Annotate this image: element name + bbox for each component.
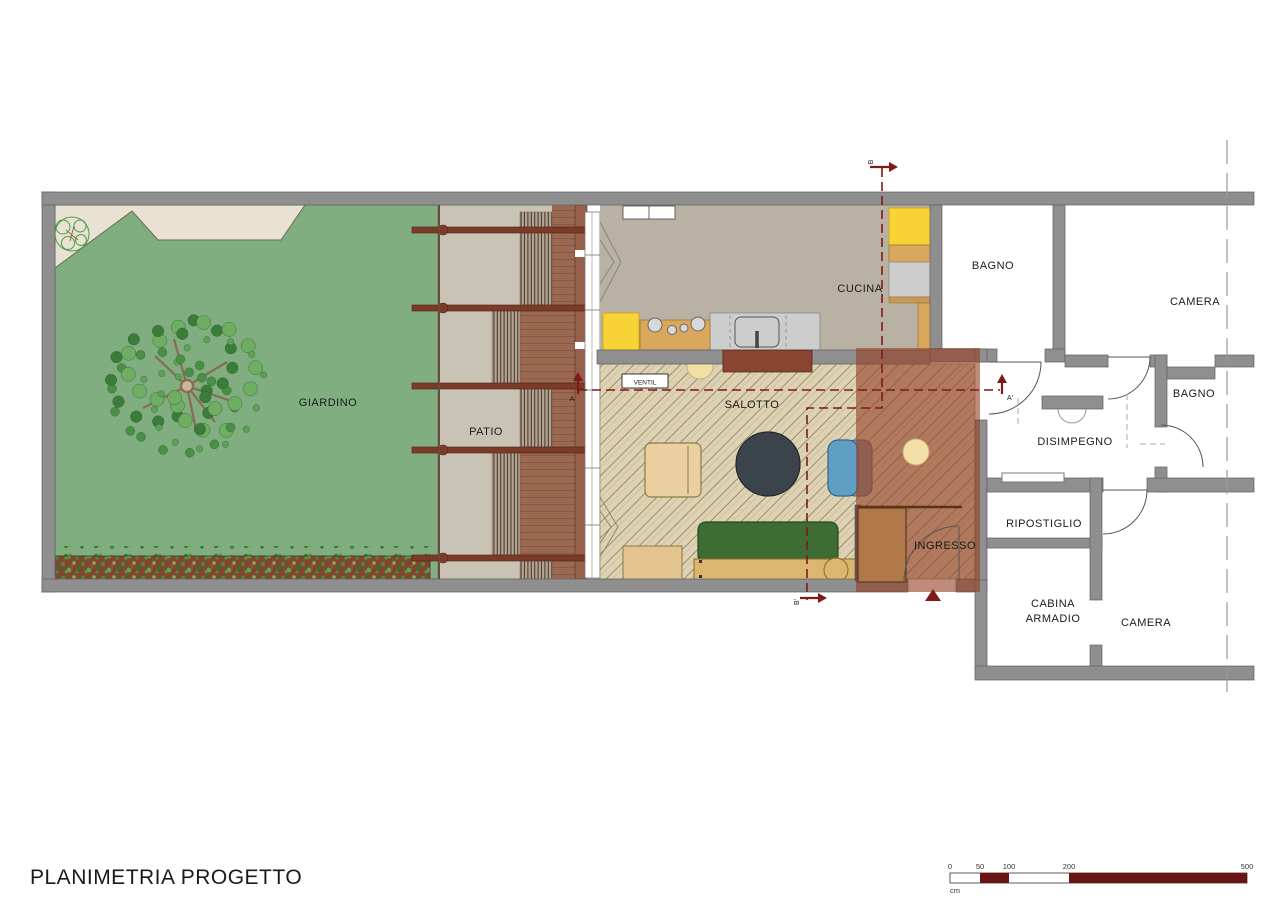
appliance-yellow — [603, 313, 639, 350]
sink-icon — [735, 317, 779, 348]
scale-segment-2 — [1069, 873, 1247, 883]
room-label-bagno1: BAGNO — [972, 260, 1014, 272]
page-title: PLANIMETRIA PROGETTO — [30, 866, 302, 889]
armchair — [645, 443, 701, 497]
room-label-giardino: GIARDINO — [299, 397, 357, 409]
side-table — [623, 546, 682, 581]
room-label-camera1: CAMERA — [1170, 296, 1220, 308]
section-label-a1: A' — [1007, 395, 1013, 402]
scale-bar: 0 50 100 200 500 cm — [948, 862, 1253, 895]
scale-tick-100: 100 — [1003, 862, 1016, 871]
floor-plan-page: B B' A A' GIARDINO PATIO CUCINA SALOTTO … — [0, 0, 1280, 905]
wall-kitchen-salotto — [597, 350, 723, 364]
fireplace-passthrough — [723, 350, 812, 372]
room-label-cabina-1: CABINA — [1031, 598, 1075, 610]
pouf — [903, 439, 929, 465]
wall-bottom-outer — [42, 579, 908, 592]
scale-segment-1 — [980, 873, 1009, 883]
scale-unit-label: cm — [950, 886, 960, 895]
camera2-door-arc — [1103, 490, 1147, 534]
wall-left-outer — [42, 192, 55, 592]
room-label-ingresso: INGRESSO — [914, 540, 976, 552]
lawn-tufts — [58, 546, 430, 557]
scale-tick-50: 50 — [976, 862, 984, 871]
kitchen-window — [623, 206, 675, 219]
wall-kitchen-bagno — [930, 205, 942, 352]
bagno2-door-arc — [1161, 425, 1203, 467]
scale-tick-500: 500 — [1241, 862, 1254, 871]
section-label-b: B — [868, 159, 875, 164]
flower-bed — [55, 556, 430, 581]
appliance-yellow-2 — [889, 208, 932, 245]
garden-area — [55, 205, 438, 581]
room-label-disimpegno: DISIMPEGNO — [1037, 436, 1112, 448]
room-label-ripostiglio: RIPOSTIGLIO — [1006, 518, 1082, 530]
wall-bagno-camera — [1053, 205, 1065, 357]
scale-tick-200: 200 — [1063, 862, 1076, 871]
disimpegno-door-arc — [989, 362, 1041, 414]
room-label-cucina: CUCINA — [837, 283, 882, 295]
wall-top-outer — [42, 192, 1254, 205]
entry-cabinet — [858, 508, 906, 582]
glass-wall — [585, 212, 600, 578]
camera1-door-arc — [1108, 357, 1150, 399]
hall-shelf — [1002, 473, 1064, 482]
section-label-b1: B' — [794, 599, 801, 605]
room-label-patio: PATIO — [469, 426, 503, 438]
room-label-salotto: SALOTTO — [725, 399, 780, 411]
floor-plan-canvas: B B' A A' GIARDINO PATIO CUCINA SALOTTO … — [0, 0, 1280, 905]
room-label-bagno2: BAGNO — [1173, 388, 1215, 400]
patio-area — [412, 205, 600, 579]
section-label-a: A — [570, 396, 575, 403]
sofa — [698, 522, 838, 563]
scale-tick-0: 0 — [948, 862, 952, 871]
bench-sideboard — [694, 558, 857, 582]
room-label-cabina-2: ARMADIO — [1026, 613, 1081, 625]
round-table — [736, 432, 800, 496]
ventil-label: VENTIL — [634, 380, 657, 387]
room-label-camera2: CAMERA — [1121, 617, 1171, 629]
kitchen-counter — [603, 313, 820, 350]
